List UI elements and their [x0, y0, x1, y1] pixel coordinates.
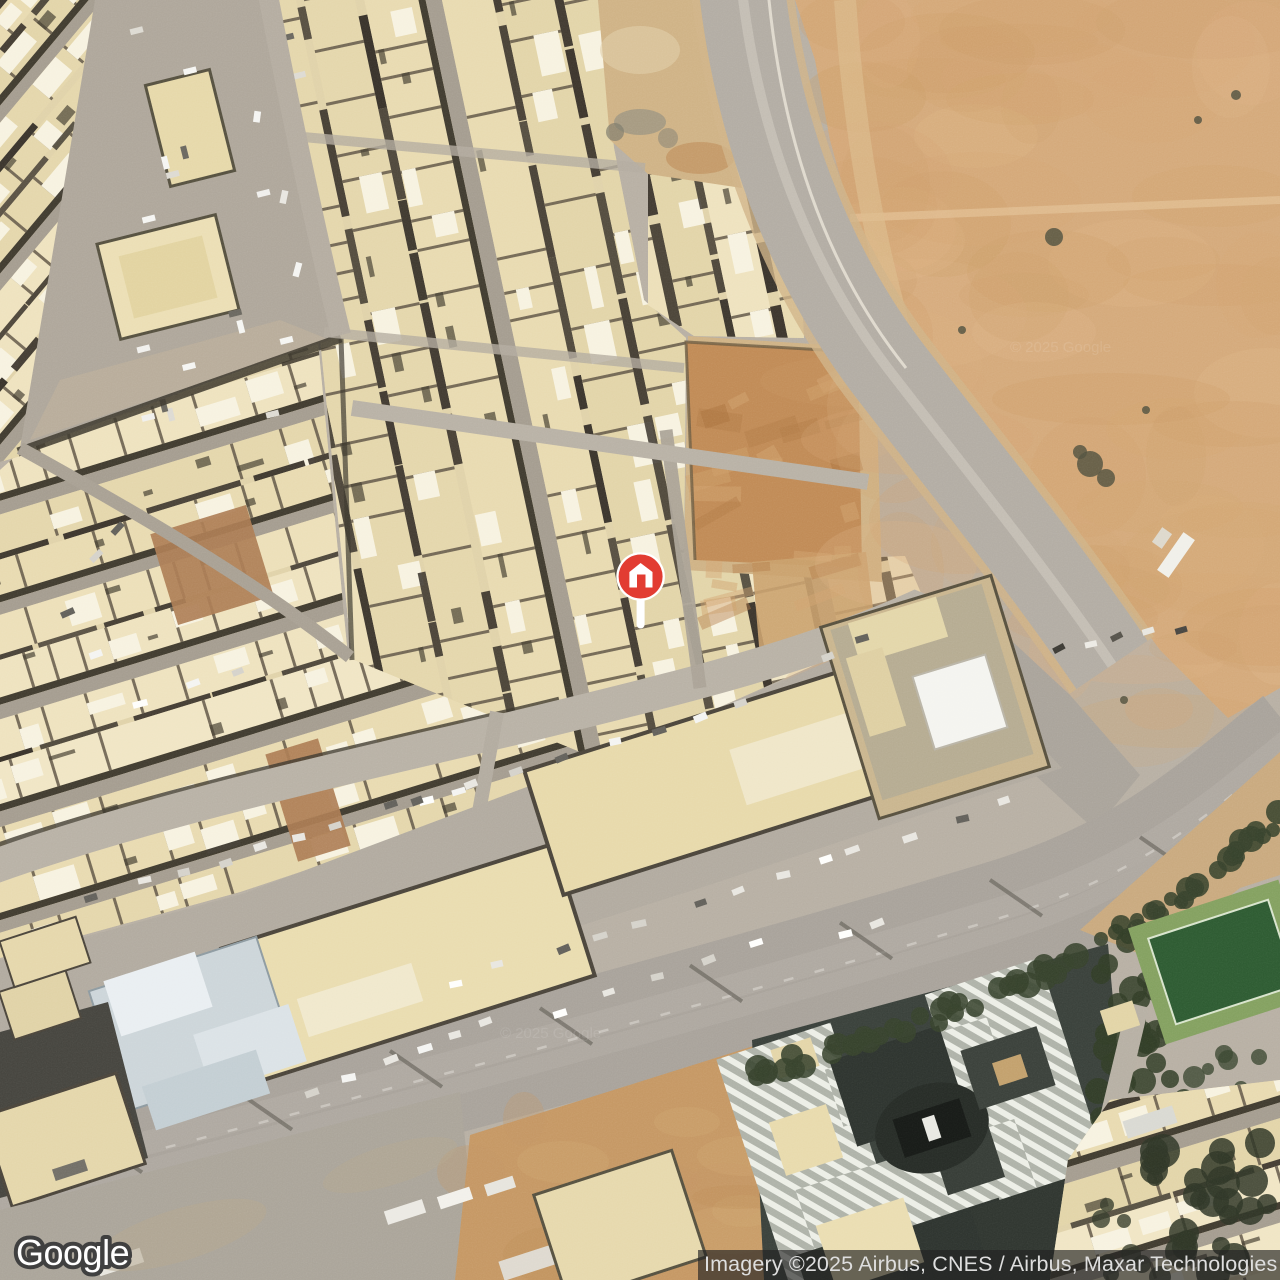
svg-text:Google: Google: [16, 1232, 129, 1273]
svg-text:© 2025 Google: © 2025 Google: [1010, 339, 1111, 356]
svg-text:© 2025 Google: © 2025 Google: [500, 1025, 601, 1042]
